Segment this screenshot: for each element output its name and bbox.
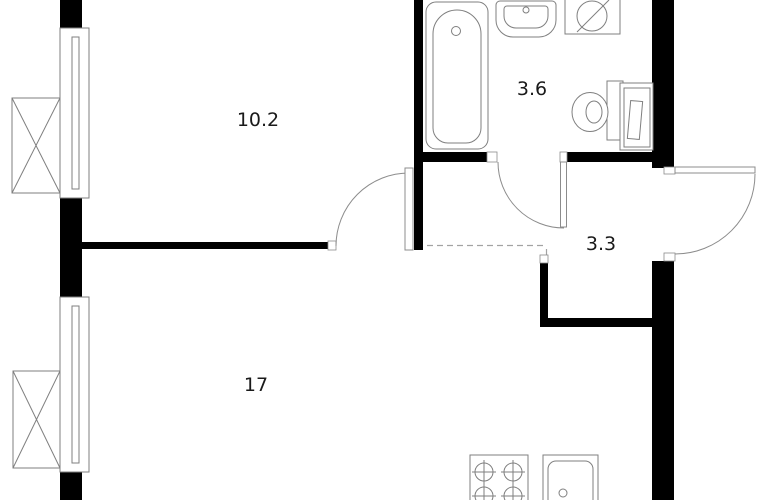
ac-unit-2 [13, 371, 60, 468]
outer-wall-left-top [60, 0, 82, 28]
window-1 [60, 28, 89, 198]
open-passage-dashed-line [427, 246, 548, 264]
faucet-icon [452, 27, 461, 36]
outer-wall-left-middle [60, 198, 82, 297]
door-arc [498, 162, 564, 228]
hallway-stub-wall [540, 263, 548, 327]
outer-wall-right-top [652, 0, 674, 168]
toilet [572, 81, 623, 140]
bathroom-west-wall [414, 0, 423, 250]
outer-wall-right-bottom [652, 261, 674, 500]
water-heater-cabinet [620, 83, 653, 150]
door-arc [675, 174, 755, 254]
door-leaf [405, 168, 413, 250]
door-leaf [561, 162, 567, 227]
door-jamb [664, 167, 675, 174]
bathroom-south-wall-left [423, 152, 487, 162]
bathroom-sink [496, 1, 556, 37]
faucet-icon [523, 7, 529, 13]
floor-plan-drawing: 10.2 3.6 3.3 17 [0, 0, 770, 500]
room-divider-wall [82, 242, 328, 249]
room-label-17: 17 [244, 374, 268, 396]
window-2 [60, 297, 89, 472]
door-arc [336, 173, 409, 246]
outer-wall-left-bottom [60, 472, 82, 500]
room-label-10-2: 10.2 [237, 109, 279, 131]
hallway-south-wall [548, 318, 652, 327]
washing-machine [565, 0, 620, 34]
walls [60, 0, 674, 500]
door-jamb [560, 152, 567, 162]
bathroom-south-wall-right [567, 152, 652, 162]
kitchen-sink [543, 455, 598, 500]
stove-4-burner [470, 455, 528, 500]
door-jamb [328, 241, 336, 250]
interior-door-room [328, 168, 413, 250]
door-jamb [540, 255, 548, 263]
door-jamb [487, 152, 497, 162]
room-label-3-6: 3.6 [517, 78, 547, 100]
faucet-icon [559, 489, 567, 497]
bathroom-door [487, 152, 567, 228]
entry-door [664, 167, 755, 261]
room-label-3-3: 3.3 [586, 233, 616, 255]
door-jamb [664, 253, 675, 261]
floor-plan: 10.2 3.6 3.3 17 [0, 0, 770, 500]
door-leaf [675, 167, 755, 173]
ac-unit-1 [12, 98, 60, 193]
bathtub [426, 2, 488, 149]
